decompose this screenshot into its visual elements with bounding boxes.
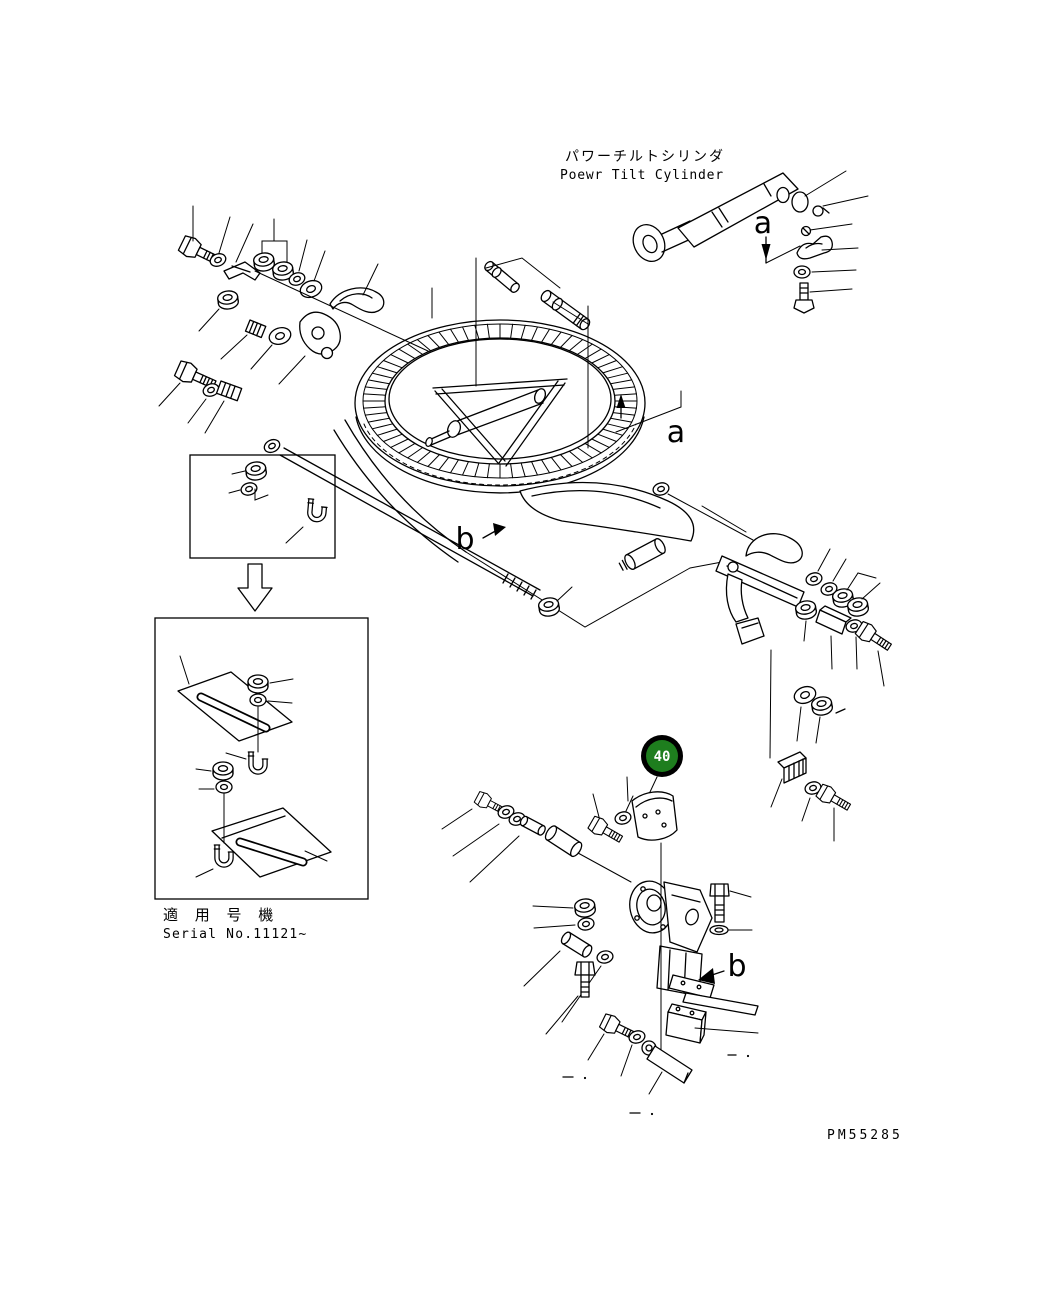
cylinder-cap-bushing bbox=[792, 192, 808, 212]
doc-number: PM55285 bbox=[827, 1128, 903, 1143]
shim-block-group bbox=[771, 752, 853, 841]
cylinder-fitting bbox=[813, 206, 823, 216]
label-a1-text: a bbox=[754, 206, 772, 241]
big-down-arrow-icon bbox=[238, 564, 272, 611]
clevis-pin-1 bbox=[483, 260, 521, 295]
detail-view-box bbox=[155, 618, 368, 899]
view-label-b-rod: b bbox=[455, 522, 506, 557]
serial-note-japanese: 適 用 号 機 bbox=[163, 906, 279, 924]
upper-left-fastener-cluster bbox=[159, 206, 428, 433]
view-label-a-top: a bbox=[754, 206, 800, 263]
callout-number: 40 bbox=[654, 749, 671, 765]
title-block: パワーチルトシリンダ Poewr Tilt Cylinder bbox=[560, 149, 725, 183]
right-bracket-assembly bbox=[690, 506, 894, 758]
power-tilt-cylinder-drawing bbox=[627, 171, 868, 267]
view-label-a-side: a bbox=[616, 391, 685, 450]
sub-assembly-box bbox=[190, 455, 335, 611]
title-english: Poewr Tilt Cylinder bbox=[560, 168, 724, 183]
swing-circle-gear bbox=[355, 258, 645, 493]
clamp-plate-lower bbox=[212, 808, 331, 877]
frame-members bbox=[334, 420, 753, 627]
cylinder-cap-washer bbox=[777, 188, 789, 203]
guard-plate-group bbox=[627, 777, 677, 840]
label-b1-text: b bbox=[455, 522, 474, 557]
hook-handle bbox=[330, 288, 384, 312]
serial-note: 適 用 号 機 Serial No.11121~ bbox=[163, 906, 307, 942]
hose-clamp-assembly bbox=[794, 224, 858, 313]
label-a2-text: a bbox=[667, 415, 685, 450]
view-label-b-bottom: b bbox=[698, 949, 747, 984]
pivot-bracket-assembly bbox=[442, 790, 758, 1115]
title-japanese: パワーチルトシリンダ bbox=[565, 149, 725, 165]
serial-note-english: Serial No.11121~ bbox=[163, 927, 307, 942]
spacer-bar bbox=[816, 606, 851, 634]
part-callout-40[interactable]: 40 bbox=[641, 735, 683, 777]
diagram-page: パワーチルトシリンダ Poewr Tilt Cylinder a bbox=[0, 0, 1047, 1295]
parts-diagram-canvas: パワーチルトシリンダ Poewr Tilt Cylinder a bbox=[0, 0, 1047, 1295]
label-b2-text: b bbox=[727, 949, 746, 984]
rod-end bbox=[617, 537, 667, 574]
tie-rod-assembly bbox=[262, 437, 572, 617]
